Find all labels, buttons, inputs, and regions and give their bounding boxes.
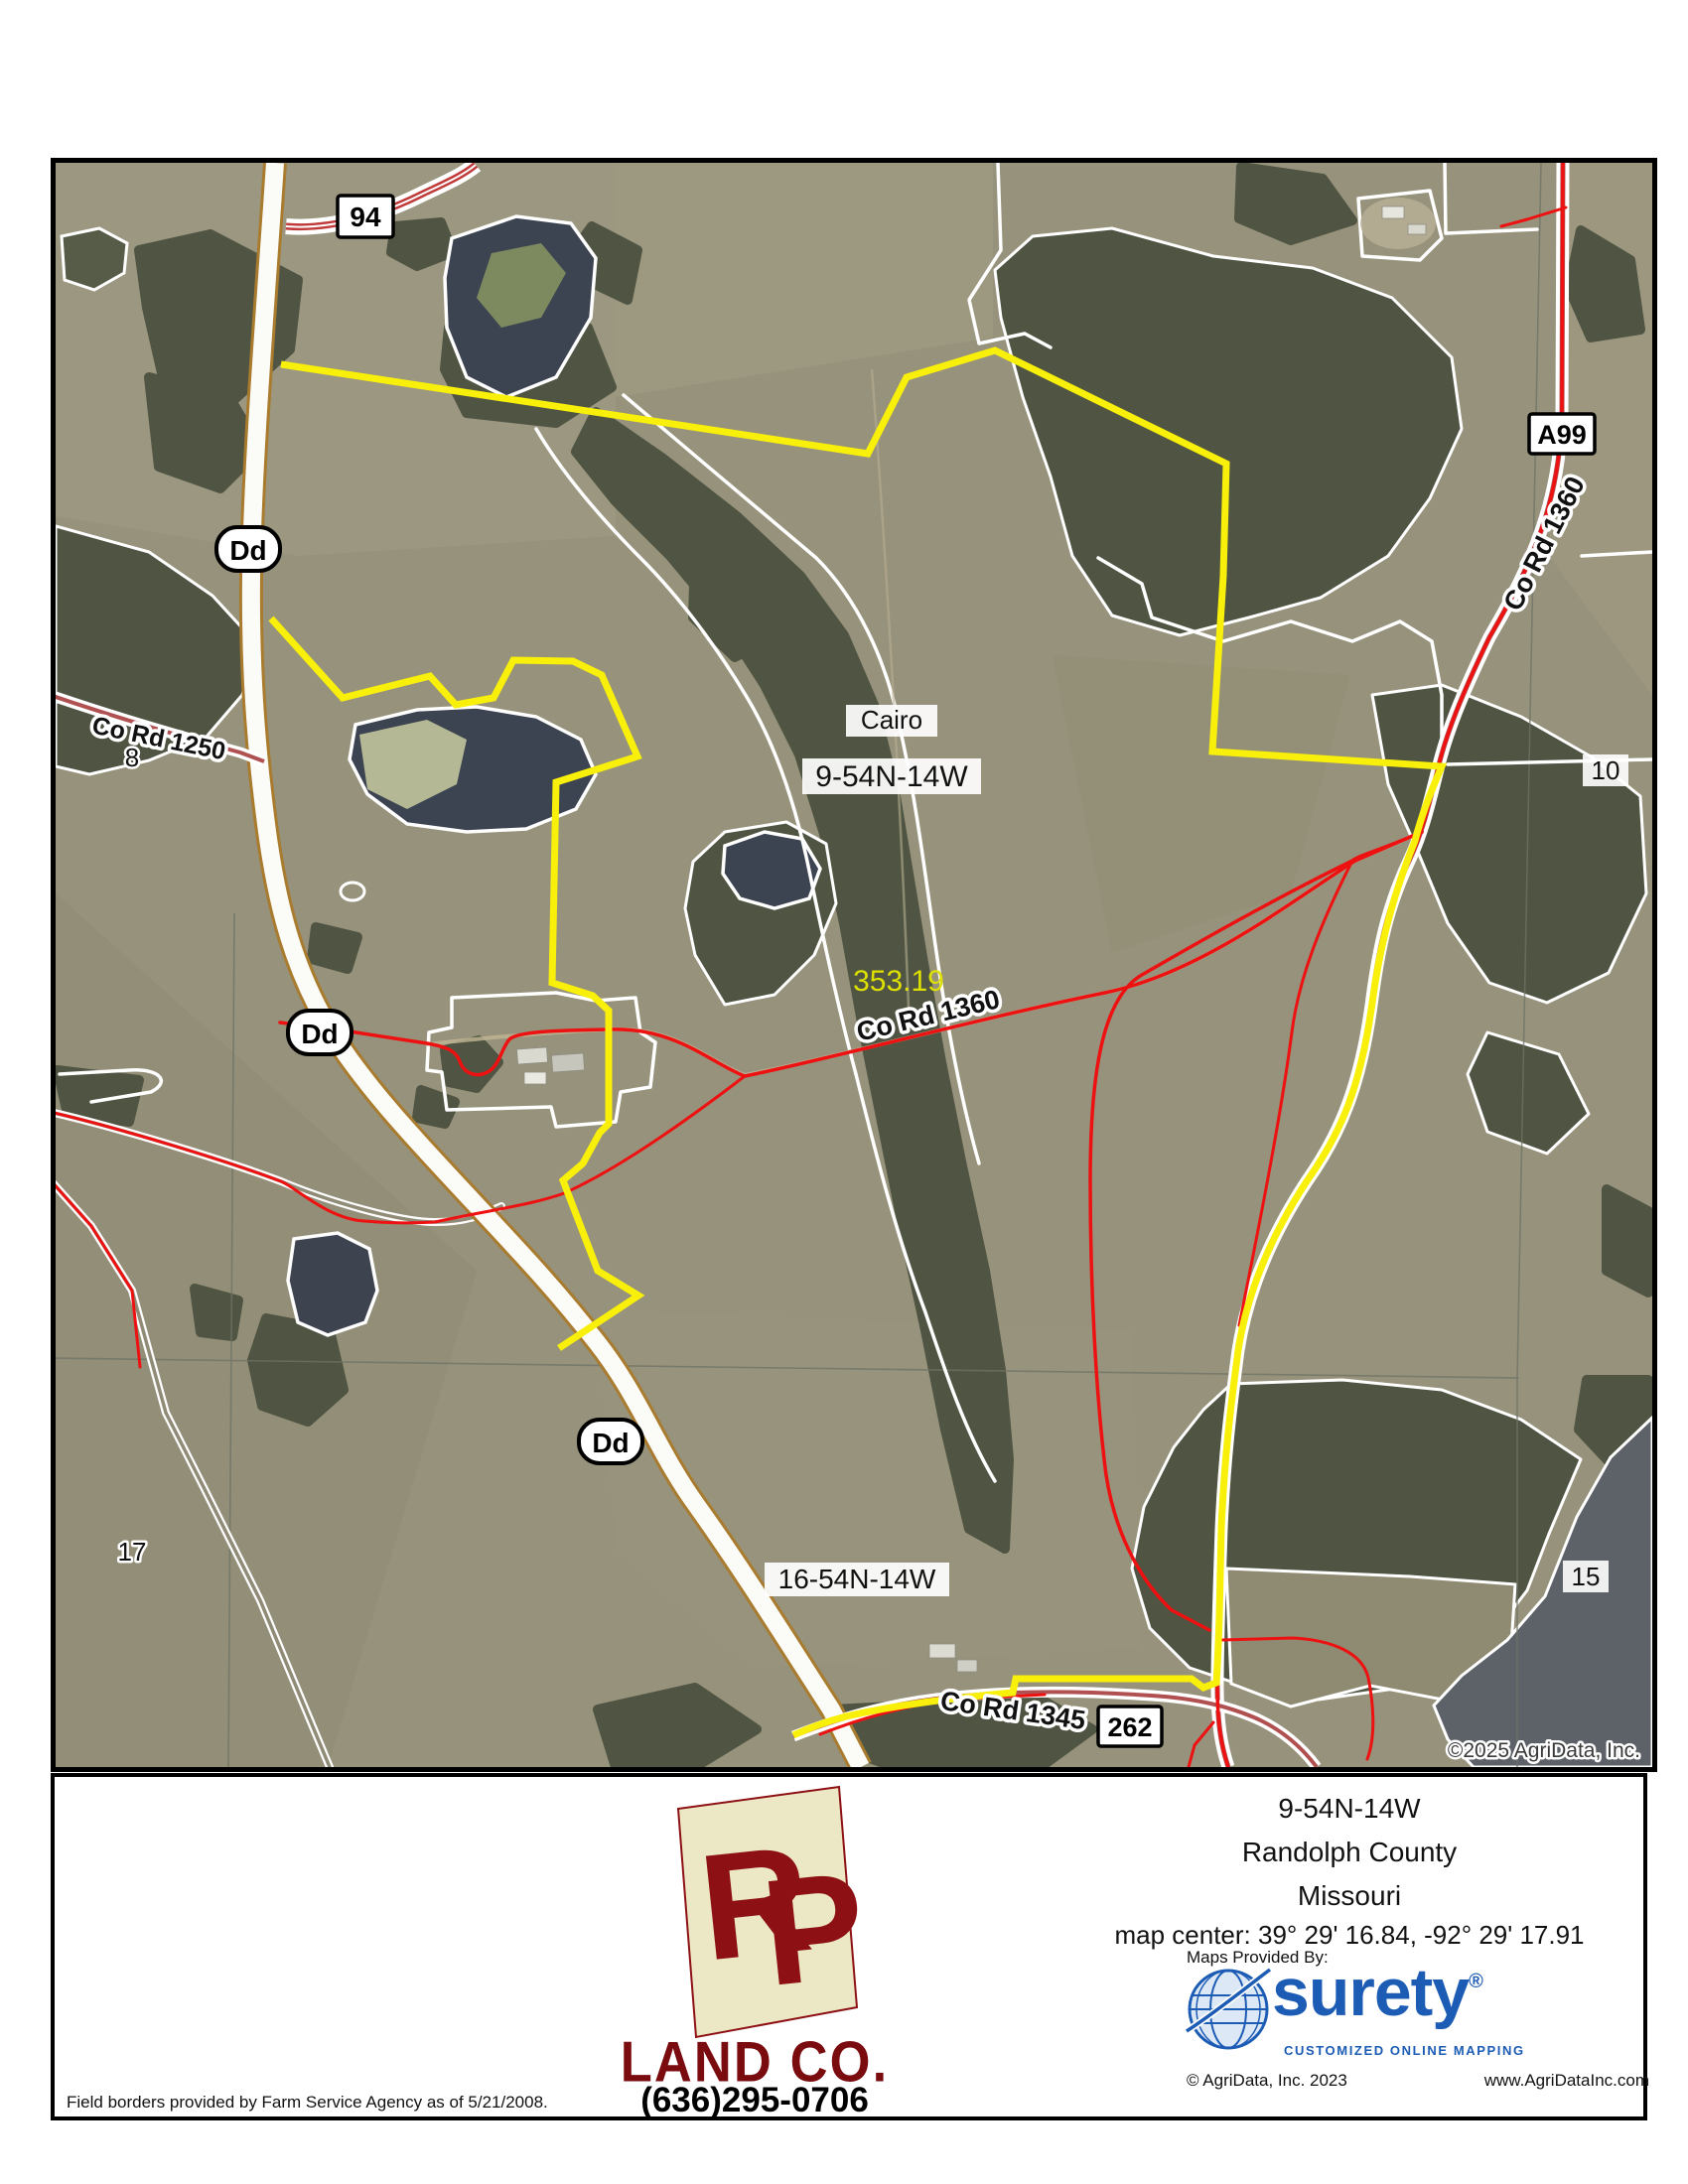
svg-text:Dd: Dd [229, 535, 266, 566]
route-shield-a99: A99 [1529, 414, 1595, 454]
surety-tagline: CUSTOMIZED ONLINE MAPPING [1284, 2043, 1525, 2058]
aerial-map-canvas: Cairo 9-54N-14W 16-54N-14W 353.19 8 10 1… [56, 163, 1652, 1767]
section-number-17: 17 [118, 1537, 147, 1567]
footer-county: Randolph County [1071, 1837, 1627, 1868]
route-shield-94: 94 [338, 196, 393, 237]
svg-text:Dd: Dd [592, 1428, 629, 1458]
surety-wordmark: surety® [1272, 1954, 1482, 2031]
svg-text:Dd: Dd [301, 1019, 338, 1049]
place-label: Cairo [861, 705, 922, 735]
route-shield-dd-2: Dd [288, 1011, 352, 1054]
pond-center [723, 832, 820, 908]
map-copyright: ©2025 AgriData, Inc. [1448, 1739, 1640, 1762]
footer-state: Missouri [1071, 1880, 1627, 1912]
company-phone: (636)295-0706 [506, 2081, 1003, 2120]
footer-township: 9-54N-14W [1071, 1793, 1627, 1825]
agridata-website: www.AgriDataInc.com [1415, 2071, 1649, 2091]
rp-land-co-logo: R P [591, 1783, 918, 2043]
township-label-9: 9-54N-14W [815, 760, 968, 793]
svg-text:A99: A99 [1537, 420, 1587, 450]
map-frame: Cairo 9-54N-14W 16-54N-14W 353.19 8 10 1… [51, 158, 1657, 1772]
agridata-copyright: © AgriData, Inc. 2023 [1187, 2071, 1347, 2091]
pond-southwest [288, 1233, 377, 1335]
footer-map-center: map center: 39° 29' 16.84, -92° 29' 17.9… [1071, 1920, 1627, 1951]
svg-text:262: 262 [1107, 1712, 1152, 1742]
surety-registered-mark: ® [1469, 1971, 1482, 1992]
surety-globe-icon [1185, 1966, 1272, 2053]
route-shield-dd-3: Dd [579, 1420, 642, 1463]
fsa-disclaimer: Field borders provided by Farm Service A… [67, 2093, 548, 2113]
plat-map-page: Cairo 9-54N-14W 16-54N-14W 353.19 8 10 1… [0, 0, 1688, 2184]
svg-text:94: 94 [350, 202, 381, 232]
surety-brand-text: surety [1272, 1955, 1469, 2030]
route-shield-262: 262 [1098, 1706, 1162, 1746]
route-shield-dd-1: Dd [216, 527, 280, 571]
township-label-16: 16-54N-14W [778, 1564, 936, 1594]
logo-monogram-p: P [755, 1840, 873, 2018]
acreage-label: 353.19 [853, 965, 944, 998]
section-number-15: 15 [1572, 1562, 1601, 1591]
section-number-10: 10 [1592, 755, 1620, 785]
footer-frame: R P LAND CO. (636)295-0706 9-54N-14W Ran… [51, 1773, 1647, 2120]
